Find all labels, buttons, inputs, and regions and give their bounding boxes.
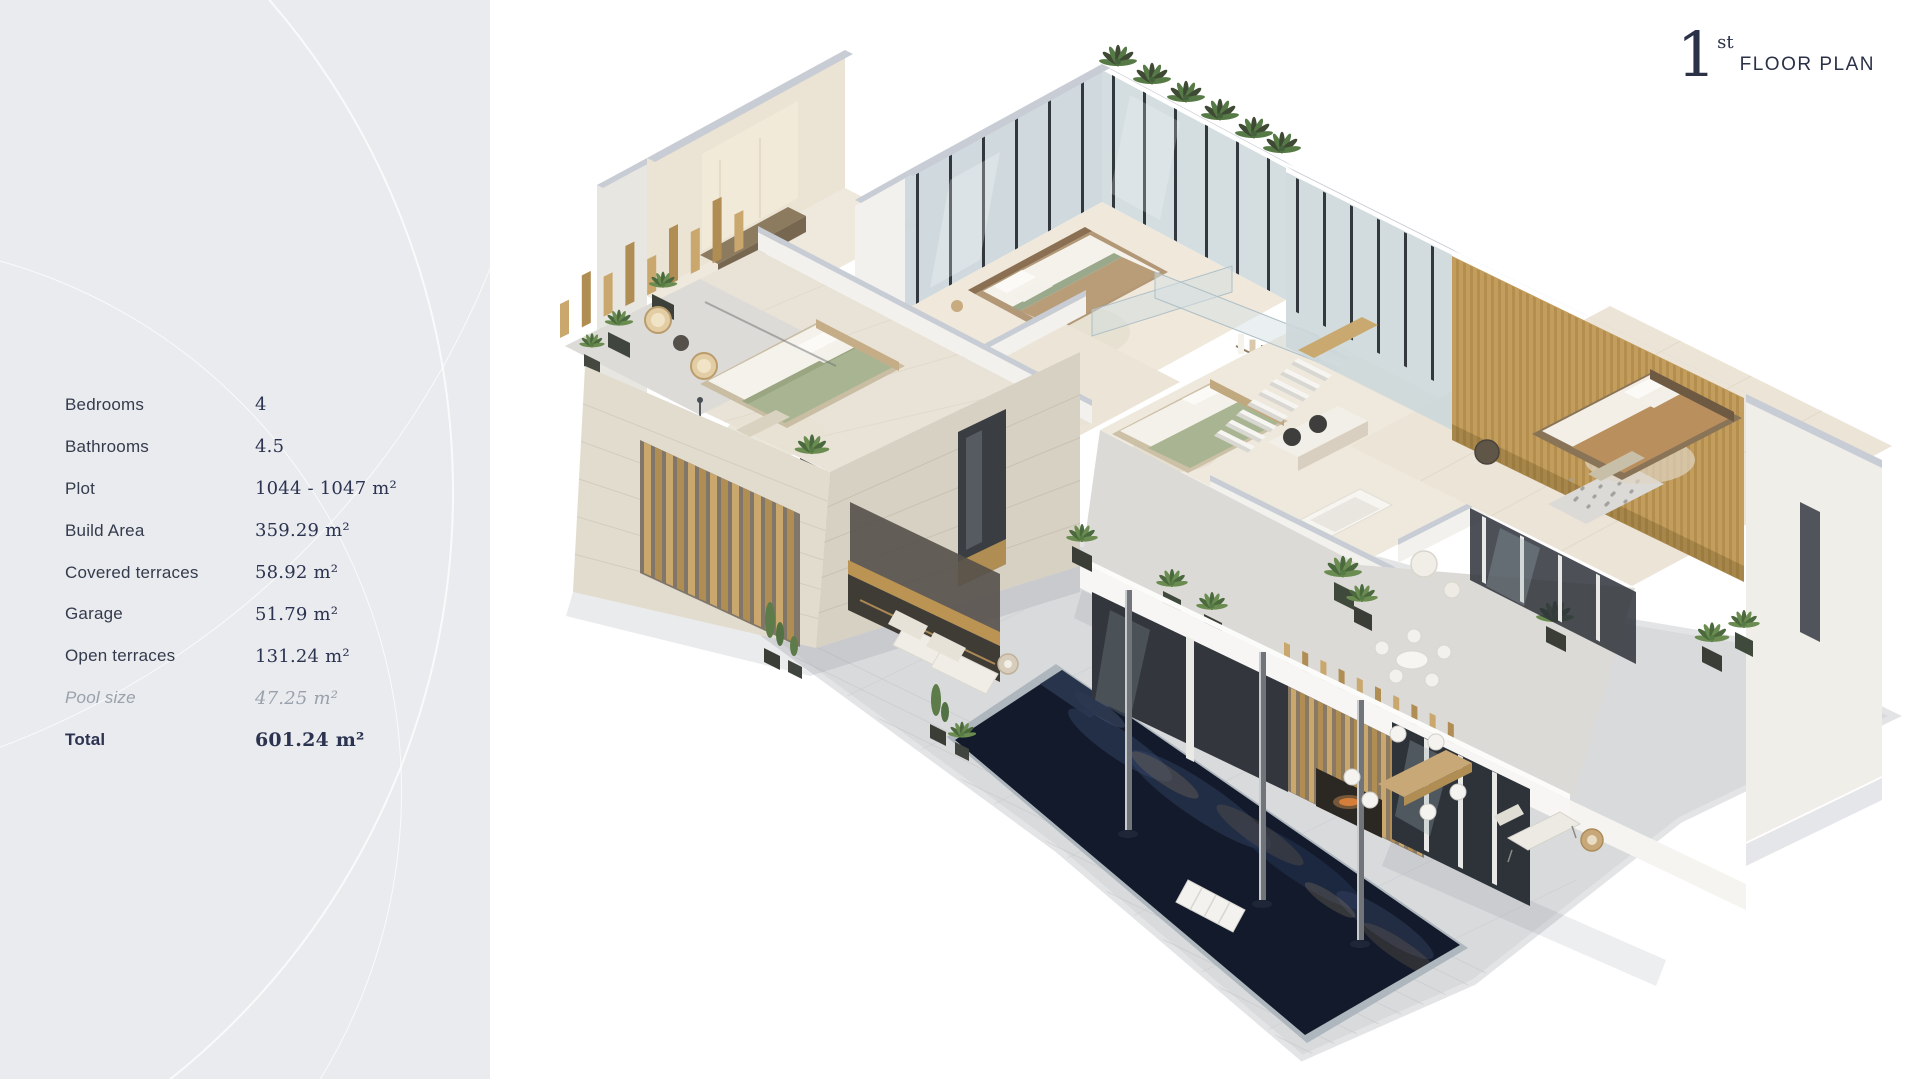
floor-plan-area: 1stFLOOR PLAN — [490, 0, 1919, 1079]
floor-number: 1 — [1677, 26, 1716, 84]
spec-value: 1044 - 1047 m² — [255, 478, 397, 499]
spec-label: Bathrooms — [65, 437, 255, 457]
spec-row-build-area: Build Area 359.29 m² — [65, 510, 455, 552]
spec-value: 4 — [255, 394, 267, 415]
floor-plan-render — [490, 0, 1919, 1079]
spec-value: 58.92 m² — [255, 562, 338, 583]
spec-row-bedrooms: Bedrooms 4 — [65, 384, 455, 426]
floor-ordinal: st — [1717, 32, 1733, 53]
spec-label: Garage — [65, 604, 255, 624]
spec-value: 601.24 m² — [255, 729, 365, 751]
spec-table: Bedrooms 4 Bathrooms 4.5 Plot 1044 - 104… — [65, 384, 455, 761]
spec-label: Plot — [65, 479, 255, 499]
spec-row-plot: Plot 1044 - 1047 m² — [65, 468, 455, 510]
spec-row-total: Total 601.24 m² — [65, 719, 455, 761]
page: Bedrooms 4 Bathrooms 4.5 Plot 1044 - 104… — [0, 0, 1919, 1079]
spec-row-garage: Garage 51.79 m² — [65, 593, 455, 635]
spec-value: 359.29 m² — [255, 520, 350, 541]
spec-value: 4.5 — [255, 436, 284, 457]
spec-value: 51.79 m² — [255, 604, 338, 625]
spec-row-pool-size: Pool size 47.25 m² — [65, 677, 455, 719]
spec-label: Pool size — [65, 688, 255, 708]
spec-row-bathrooms: Bathrooms 4.5 — [65, 426, 455, 468]
spec-label: Covered terraces — [65, 563, 255, 583]
spec-sidebar: Bedrooms 4 Bathrooms 4.5 Plot 1044 - 104… — [0, 0, 490, 1079]
floor-title: 1stFLOOR PLAN — [1677, 26, 1875, 84]
spec-row-covered-terraces: Covered terraces 58.92 m² — [65, 552, 455, 594]
floor-title-text: FLOOR PLAN — [1740, 54, 1875, 76]
spec-label: Open terraces — [65, 646, 255, 666]
spec-row-open-terraces: Open terraces 131.24 m² — [65, 635, 455, 677]
spec-value: 47.25 m² — [255, 688, 338, 709]
spec-label: Bedrooms — [65, 395, 255, 415]
spec-label: Total — [65, 730, 255, 750]
right-end-wall — [1746, 394, 1882, 866]
spec-value: 131.24 m² — [255, 646, 350, 667]
spec-label: Build Area — [65, 521, 255, 541]
